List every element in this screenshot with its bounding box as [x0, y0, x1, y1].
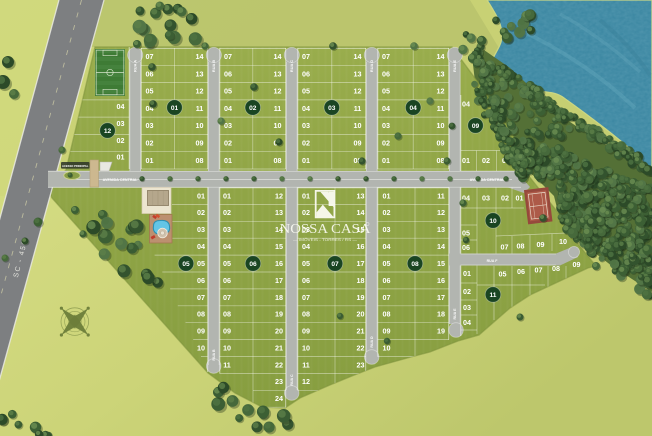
svg-text:08: 08	[411, 261, 419, 268]
svg-text:03: 03	[146, 121, 154, 130]
svg-text:09: 09	[573, 260, 581, 269]
svg-text:09: 09	[354, 139, 362, 148]
svg-text:02: 02	[463, 287, 471, 296]
svg-text:02: 02	[482, 156, 490, 165]
svg-text:RUA B: RUA B	[212, 349, 216, 361]
svg-text:02: 02	[382, 139, 390, 148]
svg-text:04: 04	[224, 104, 232, 113]
svg-text:08: 08	[552, 264, 560, 273]
svg-text:08: 08	[196, 156, 204, 165]
svg-text:06: 06	[197, 276, 205, 285]
svg-text:05: 05	[146, 87, 154, 96]
svg-text:14: 14	[196, 52, 204, 61]
svg-text:12: 12	[104, 128, 112, 135]
svg-text:23: 23	[275, 377, 283, 386]
svg-text:13: 13	[354, 69, 362, 78]
svg-text:03: 03	[482, 193, 490, 202]
svg-text:AVENIDA CENTRAL: AVENIDA CENTRAL	[470, 178, 506, 182]
svg-text:04: 04	[382, 104, 390, 113]
svg-text:05: 05	[223, 259, 231, 268]
svg-text:22: 22	[357, 343, 365, 352]
svg-text:07: 07	[223, 293, 231, 302]
svg-text:10: 10	[437, 121, 445, 130]
svg-text:01: 01	[302, 191, 310, 200]
svg-text:18: 18	[437, 310, 445, 319]
svg-text:09: 09	[196, 139, 204, 148]
svg-text:24: 24	[275, 394, 283, 403]
svg-text:07: 07	[501, 242, 509, 251]
svg-text:11: 11	[302, 360, 310, 369]
svg-text:19: 19	[357, 293, 365, 302]
svg-text:07: 07	[224, 52, 232, 61]
svg-text:07: 07	[197, 293, 205, 302]
svg-text:03: 03	[463, 303, 471, 312]
svg-text:RUA C: RUA C	[289, 60, 294, 72]
svg-text:03: 03	[197, 225, 205, 234]
svg-text:02: 02	[146, 139, 154, 148]
svg-text:10: 10	[354, 121, 362, 130]
svg-text:17: 17	[437, 293, 445, 302]
svg-text:20: 20	[357, 310, 365, 319]
svg-text:12: 12	[437, 87, 445, 96]
svg-text:14: 14	[437, 52, 445, 61]
svg-text:06: 06	[223, 276, 231, 285]
svg-text:09: 09	[197, 327, 205, 336]
svg-text:01: 01	[146, 156, 154, 165]
svg-text:10: 10	[223, 343, 231, 352]
svg-text:20: 20	[275, 327, 283, 336]
svg-text:21: 21	[275, 343, 283, 352]
svg-text:16: 16	[357, 242, 365, 251]
svg-text:11: 11	[354, 104, 362, 113]
svg-text:14: 14	[357, 208, 365, 217]
svg-text:05: 05	[197, 259, 205, 268]
svg-text:12: 12	[354, 87, 362, 96]
svg-text:16: 16	[275, 259, 283, 268]
svg-text:08: 08	[197, 310, 205, 319]
svg-text:18: 18	[275, 293, 283, 302]
svg-text:15: 15	[437, 259, 445, 268]
svg-text:RUA F: RUA F	[487, 259, 499, 263]
svg-text:01: 01	[462, 156, 470, 165]
svg-text:11: 11	[437, 104, 445, 113]
svg-text:10: 10	[274, 121, 282, 130]
svg-text:14: 14	[437, 242, 445, 251]
svg-text:RUA D: RUA D	[370, 336, 374, 348]
svg-text:19: 19	[437, 327, 445, 336]
svg-text:10: 10	[559, 237, 567, 246]
svg-text:01: 01	[382, 156, 390, 165]
svg-text:03: 03	[302, 121, 310, 130]
svg-text:04: 04	[117, 102, 125, 111]
svg-text:01: 01	[224, 156, 232, 165]
svg-text:11: 11	[274, 104, 282, 113]
svg-text:04: 04	[383, 242, 391, 251]
svg-text:08: 08	[274, 156, 282, 165]
svg-text:06: 06	[302, 276, 310, 285]
svg-text:AVENIDA CENTRAL: AVENIDA CENTRAL	[103, 178, 139, 182]
svg-text:13: 13	[357, 191, 365, 200]
svg-text:06: 06	[462, 243, 470, 252]
svg-text:08: 08	[302, 310, 310, 319]
svg-text:RUA A: RUA A	[133, 60, 138, 72]
svg-text:02: 02	[117, 136, 125, 145]
svg-text:07: 07	[331, 261, 339, 268]
svg-text:04: 04	[223, 242, 231, 251]
svg-text:17: 17	[357, 259, 365, 268]
svg-text:11: 11	[490, 292, 497, 299]
svg-text:17: 17	[275, 276, 283, 285]
svg-text:02: 02	[197, 208, 205, 217]
svg-text:13: 13	[274, 69, 282, 78]
svg-text:01: 01	[171, 105, 179, 112]
svg-text:09: 09	[472, 123, 480, 130]
svg-text:03: 03	[117, 119, 125, 128]
svg-text:02: 02	[224, 139, 232, 148]
svg-text:07: 07	[302, 52, 310, 61]
svg-text:07: 07	[383, 293, 391, 302]
svg-text:04: 04	[302, 242, 310, 251]
svg-text:04: 04	[302, 104, 310, 113]
svg-text:07: 07	[535, 265, 543, 274]
svg-text:09: 09	[223, 327, 231, 336]
svg-text:14: 14	[354, 52, 362, 61]
svg-text:10: 10	[197, 343, 205, 352]
svg-text:01: 01	[117, 152, 125, 161]
svg-text:11: 11	[196, 104, 204, 113]
svg-text:09: 09	[437, 139, 445, 148]
svg-text:01: 01	[223, 191, 231, 200]
svg-text:05: 05	[302, 87, 310, 96]
svg-text:04: 04	[197, 242, 205, 251]
svg-text:12: 12	[274, 87, 282, 96]
svg-text:07: 07	[382, 52, 390, 61]
svg-text:09: 09	[302, 327, 310, 336]
svg-text:05: 05	[383, 259, 391, 268]
svg-text:11: 11	[437, 191, 445, 200]
svg-text:08: 08	[383, 310, 391, 319]
svg-text:06: 06	[224, 69, 232, 78]
svg-text:22: 22	[275, 360, 283, 369]
svg-text:01: 01	[197, 191, 205, 200]
svg-text:12: 12	[302, 377, 310, 386]
svg-text:03: 03	[383, 225, 391, 234]
svg-text:21: 21	[357, 327, 365, 336]
svg-text:01: 01	[302, 156, 310, 165]
svg-text:19: 19	[275, 310, 283, 319]
svg-text:13: 13	[437, 69, 445, 78]
svg-text:16: 16	[437, 276, 445, 285]
svg-text:10: 10	[196, 121, 204, 130]
svg-text:NOSSA CASA: NOSSA CASA	[280, 221, 371, 236]
svg-text:RUA B: RUA B	[211, 60, 216, 72]
svg-text:05: 05	[462, 228, 470, 237]
svg-text:05: 05	[499, 269, 507, 278]
svg-text:02: 02	[501, 193, 509, 202]
svg-text:07: 07	[146, 52, 154, 61]
svg-text:01: 01	[383, 191, 391, 200]
svg-text:04: 04	[410, 105, 418, 112]
svg-text:06: 06	[302, 69, 310, 78]
svg-text:09: 09	[537, 240, 545, 249]
svg-text:06: 06	[383, 276, 391, 285]
svg-text:05: 05	[302, 259, 310, 268]
svg-text:08: 08	[517, 241, 525, 250]
svg-text:02: 02	[302, 208, 310, 217]
svg-text:18: 18	[357, 276, 365, 285]
svg-text:13: 13	[196, 69, 204, 78]
svg-text:14: 14	[274, 52, 282, 61]
svg-text:02: 02	[383, 208, 391, 217]
svg-text:12: 12	[437, 208, 445, 217]
svg-text:23: 23	[357, 360, 365, 369]
svg-text:06: 06	[382, 69, 390, 78]
svg-text:04: 04	[463, 318, 471, 327]
svg-text:04: 04	[462, 99, 470, 108]
svg-text:10: 10	[489, 218, 497, 225]
svg-text:06: 06	[249, 261, 257, 268]
svg-text:13: 13	[437, 225, 445, 234]
svg-text:07: 07	[302, 293, 310, 302]
svg-text:RUA E: RUA E	[452, 60, 457, 72]
svg-text:09: 09	[383, 327, 391, 336]
svg-text:03: 03	[382, 121, 390, 130]
svg-text:08: 08	[223, 310, 231, 319]
svg-text:01: 01	[516, 193, 524, 202]
svg-text:— IMÓVEIS - TORRES / RS —: — IMÓVEIS - TORRES / RS —	[293, 237, 357, 242]
svg-text:13: 13	[275, 208, 283, 217]
svg-text:RUA C: RUA C	[290, 374, 294, 386]
svg-text:02: 02	[223, 208, 231, 217]
svg-text:RUA E: RUA E	[453, 308, 457, 320]
svg-text:01: 01	[463, 269, 471, 278]
svg-text:05: 05	[182, 261, 190, 268]
svg-text:05: 05	[382, 87, 390, 96]
svg-text:12: 12	[275, 191, 283, 200]
svg-text:05: 05	[224, 87, 232, 96]
svg-text:08: 08	[437, 156, 445, 165]
svg-text:02: 02	[302, 139, 310, 148]
svg-text:ACESSO PRINCIPAL: ACESSO PRINCIPAL	[62, 164, 89, 168]
svg-text:03: 03	[328, 105, 336, 112]
svg-text:15: 15	[275, 242, 283, 251]
svg-text:RUA D: RUA D	[369, 60, 374, 72]
svg-text:12: 12	[196, 87, 204, 96]
svg-text:02: 02	[249, 105, 257, 112]
svg-text:03: 03	[223, 225, 231, 234]
svg-text:11: 11	[223, 360, 231, 369]
svg-text:06: 06	[517, 267, 525, 276]
svg-text:10: 10	[302, 343, 310, 352]
